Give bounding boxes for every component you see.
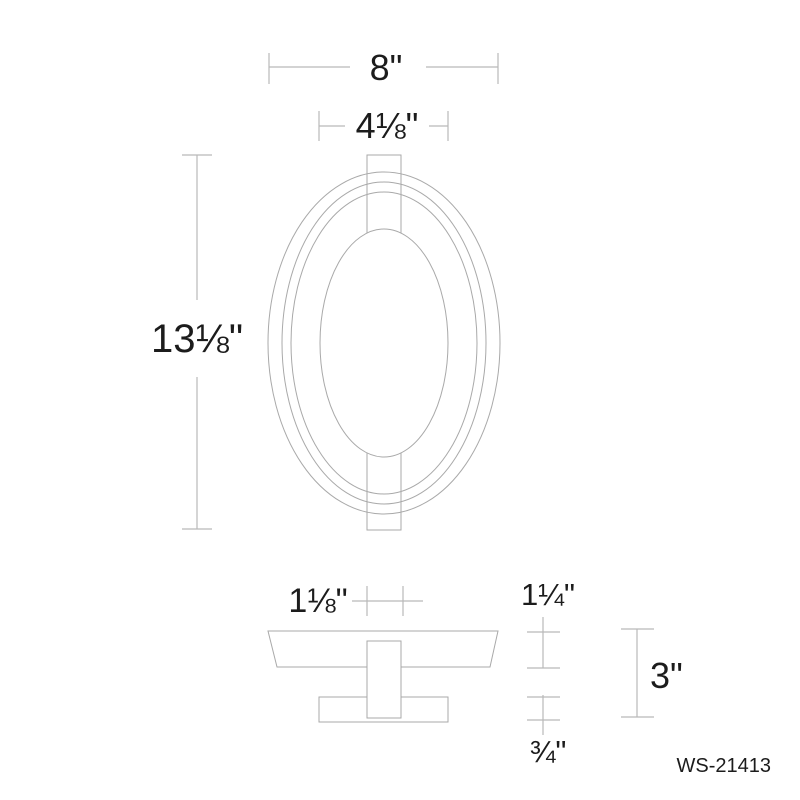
- dim-overall-depth: 3": [621, 629, 683, 717]
- dim-overall-height: 13⅛": [151, 155, 243, 529]
- dim-label-ring-depth: 1¼": [521, 577, 575, 612]
- dim-stem-width: 1⅛": [288, 582, 423, 620]
- product-code: WS-21413: [677, 755, 772, 777]
- dim-label-overall-depth: 3": [650, 655, 683, 696]
- dim-label-overall-height: 13⅛": [151, 317, 243, 361]
- dim-label-backplate-width: 4⅛": [356, 105, 419, 146]
- front-view: [268, 155, 500, 530]
- dimension-diagram-svg: 8" 4⅛" 13⅛" 1⅛": [0, 0, 800, 800]
- inner-oval-diffuser: [320, 229, 448, 457]
- stem-profile: [367, 641, 401, 718]
- dim-label-backplate-depth: ¾": [530, 734, 567, 769]
- dim-label-stem-width: 1⅛": [288, 582, 347, 620]
- dim-label-overall-width: 8": [370, 47, 403, 88]
- dim-backplate-width: 4⅛": [319, 105, 448, 146]
- dim-backplate-depth: ¾": [527, 695, 566, 769]
- technical-drawing-canvas: 8" 4⅛" 13⅛" 1⅛": [0, 0, 800, 800]
- bottom-view: [268, 631, 498, 722]
- dim-ring-depth: 1¼": [521, 577, 575, 668]
- dim-overall-width: 8": [269, 47, 498, 88]
